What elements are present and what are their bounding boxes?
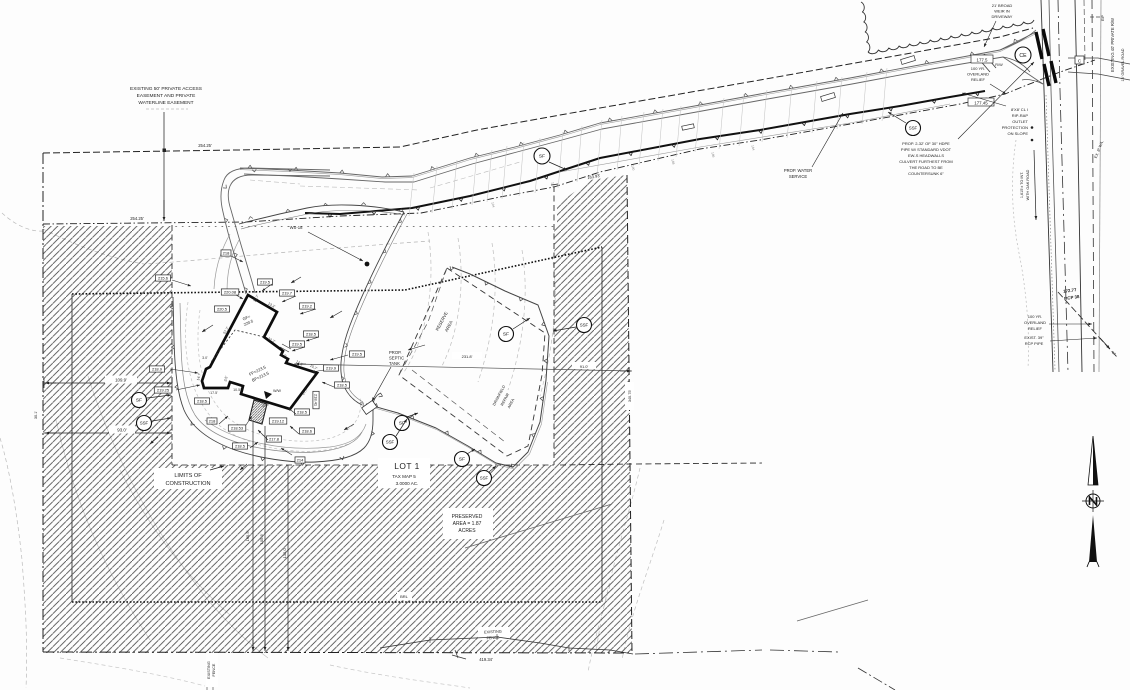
svg-text:3.0': 3.0' <box>202 356 208 360</box>
svg-text:218.5: 218.5 <box>197 398 208 403</box>
svg-text:RCP PIPE: RCP PIPE <box>1025 341 1044 346</box>
svg-text:SSF: SSF <box>480 476 489 481</box>
svg-text:177.45: 177.45 <box>974 101 988 106</box>
svg-text:TANK: TANK <box>389 361 400 366</box>
svg-text:PRESERVED: PRESERVED <box>452 514 483 520</box>
svg-text:WITH OAK ROAD: WITH OAK ROAD <box>1026 169 1030 200</box>
svg-text:R/W: R/W <box>995 63 1003 67</box>
svg-text:PROP.: PROP. <box>389 350 402 355</box>
svg-text:PROTECTION: PROTECTION <box>1002 125 1028 130</box>
svg-text:254.25': 254.25' <box>130 216 144 221</box>
svg-text:OVERLAND: OVERLAND <box>967 72 989 77</box>
svg-text:PROP. WATER: PROP. WATER <box>784 168 812 173</box>
svg-text:SF: SF <box>136 398 142 404</box>
svg-text:RELIEF: RELIEF <box>971 77 986 82</box>
svg-text:1,615'± TO INT.: 1,615'± TO INT. <box>1020 172 1024 198</box>
svg-text:30.1': 30.1' <box>34 411 38 419</box>
svg-text:217.8: 217.8 <box>269 436 280 441</box>
svg-text:219.5: 219.5 <box>352 351 363 356</box>
svg-text:DRIVEWAY: DRIVEWAY <box>992 14 1013 19</box>
svg-text:EXIST. 39": EXIST. 39" <box>1024 335 1044 340</box>
svg-text:CONSTRUCTION: CONSTRUCTION <box>165 481 210 487</box>
svg-text:219.12: 219.12 <box>272 418 285 423</box>
svg-text:WATERLINE EASEMENT: WATERLINE EASEMENT <box>138 100 193 106</box>
svg-text:218.6: 218.6 <box>302 428 313 433</box>
svg-text:FENCE: FENCE <box>486 636 500 641</box>
svg-text:215.6: 215.6 <box>158 275 169 280</box>
svg-text:218.53: 218.53 <box>231 425 244 430</box>
svg-text:8'X8' CL I: 8'X8' CL I <box>1011 107 1028 112</box>
svg-text:C: C <box>1078 58 1082 64</box>
svg-text:WEIR IN: WEIR IN <box>994 9 1010 14</box>
svg-text:OUTLET: OUTLET <box>1012 119 1028 124</box>
svg-text:219.25: 219.25 <box>157 387 170 392</box>
svg-text:THE ROAD TO BE: THE ROAD TO BE <box>909 165 943 170</box>
svg-text:219.5: 219.5 <box>260 279 271 284</box>
svg-text:218: 218 <box>209 418 216 423</box>
svg-text:SSF: SSF <box>580 323 589 328</box>
svg-text:100 YR.: 100 YR. <box>971 66 985 71</box>
svg-text:SERVICE: SERVICE <box>789 174 808 179</box>
svg-text:419.34': 419.34' <box>479 657 493 662</box>
svg-text:ACRES: ACRES <box>458 528 476 534</box>
svg-text:219.7: 219.7 <box>282 290 293 295</box>
svg-text:165.5': 165.5' <box>245 530 250 541</box>
svg-text:SSF: SSF <box>909 126 918 131</box>
svg-text:PROP. 2-32' OF 30" HDPE: PROP. 2-32' OF 30" HDPE <box>902 141 950 146</box>
svg-text:SSF: SSF <box>140 421 149 426</box>
svg-text:PIPE W/ STANDARD VDOT: PIPE W/ STANDARD VDOT <box>901 147 952 152</box>
svg-text:220.08: 220.08 <box>224 289 237 294</box>
svg-text:TAX MAP 5: TAX MAP 5 <box>392 474 416 479</box>
svg-text:109.9': 109.9' <box>115 378 127 383</box>
svg-text:EXISTING: EXISTING <box>207 661 211 679</box>
svg-text:EASEMENT AND PRIVATE: EASEMENT AND PRIVATE <box>137 93 196 99</box>
svg-text:218.5: 218.5 <box>337 382 348 387</box>
svg-text:LIMITS OF: LIMITS OF <box>174 473 202 479</box>
svg-text:220.5: 220.5 <box>217 306 228 311</box>
svg-text:WS-18: WS-18 <box>290 225 303 230</box>
svg-text:RELIEF: RELIEF <box>1028 326 1043 331</box>
svg-text:218.5: 218.5 <box>297 409 308 414</box>
svg-text:EXISTING 50' PRIVATE ACCESS: EXISTING 50' PRIVATE ACCESS <box>130 86 202 92</box>
svg-text:218.41: 218.41 <box>314 394 319 407</box>
svg-text:218: 218 <box>223 250 230 255</box>
svg-text:105.3': 105.3' <box>259 533 264 544</box>
svg-text:218.5: 218.5 <box>235 443 246 448</box>
svg-text:3.0000 AC.: 3.0000 AC. <box>396 481 419 486</box>
svg-text:17.5': 17.5' <box>210 391 218 395</box>
svg-text:231.8': 231.8' <box>462 354 473 359</box>
svg-text:SF: SF <box>539 154 545 160</box>
svg-text:100 YR.: 100 YR. <box>1028 314 1042 319</box>
svg-text:CULVERT FURTHEST FROM: CULVERT FURTHEST FROM <box>899 159 952 164</box>
svg-text:EW-S HEADWALLS: EW-S HEADWALLS <box>908 153 944 158</box>
svg-text:15' GRAVEL ROAD: 15' GRAVEL ROAD <box>1121 48 1125 81</box>
svg-text:218.5: 218.5 <box>306 331 317 336</box>
svg-text:218.9: 218.9 <box>152 366 163 371</box>
svg-text:EXISTING 40' PRIVATE R/W: EXISTING 40' PRIVATE R/W <box>1110 18 1115 72</box>
svg-text:COUNTERSUNK 6": COUNTERSUNK 6" <box>908 171 944 176</box>
svg-text:RIP-RAP: RIP-RAP <box>1012 113 1029 118</box>
svg-text:93.0': 93.0' <box>117 428 127 433</box>
svg-text:21' BROAD: 21' BROAD <box>992 3 1013 8</box>
svg-text:132.0': 132.0' <box>282 547 287 558</box>
svg-text:91.0': 91.0' <box>580 364 589 369</box>
svg-text:W/W: W/W <box>273 389 281 393</box>
svg-text:FENCE: FENCE <box>212 663 216 676</box>
svg-text:ON SLOPE: ON SLOPE <box>1008 131 1029 136</box>
svg-text:219.2: 219.2 <box>302 303 313 308</box>
svg-text:SSF: SSF <box>386 440 395 445</box>
svg-text:340.75': 340.75' <box>628 390 632 403</box>
svg-text:214: 214 <box>297 457 304 462</box>
svg-text:AREA = 1.87: AREA = 1.87 <box>453 521 482 527</box>
svg-text:EIP: EIP <box>1101 15 1105 21</box>
svg-text:177.5: 177.5 <box>977 58 989 63</box>
svg-text:219.9: 219.9 <box>326 365 337 370</box>
svg-text:SEPTIC: SEPTIC <box>389 356 404 361</box>
svg-text:10.5': 10.5' <box>233 388 241 392</box>
svg-text:254.25': 254.25' <box>198 143 212 148</box>
svg-text:BRL: BRL <box>400 594 409 599</box>
svg-text:CE: CE <box>1019 53 1027 59</box>
svg-text:LOT 1: LOT 1 <box>394 461 420 471</box>
svg-text:SF: SF <box>503 332 509 338</box>
svg-text:219.5: 219.5 <box>292 341 303 346</box>
svg-text:OVERLAND: OVERLAND <box>1024 320 1046 325</box>
svg-text:SF: SF <box>459 457 465 463</box>
